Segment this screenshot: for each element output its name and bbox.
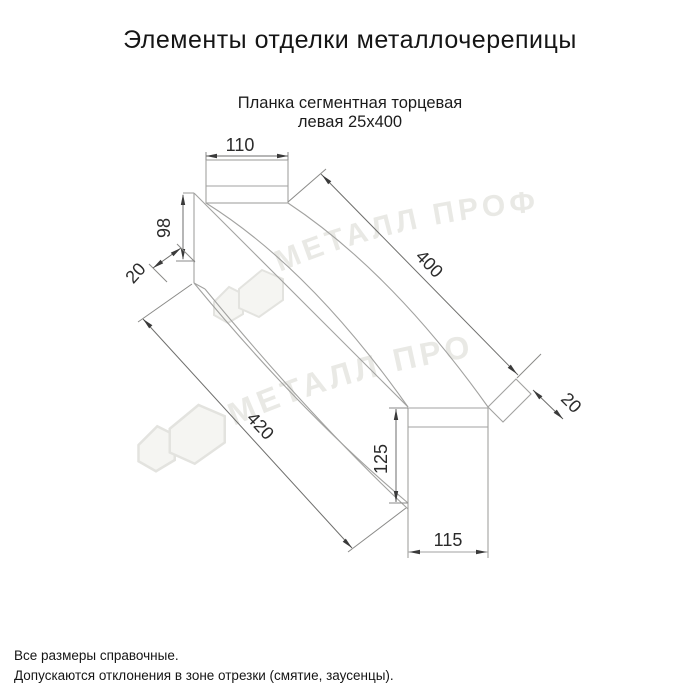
top-flange-face bbox=[206, 160, 288, 203]
watermark-logo-2 bbox=[139, 405, 225, 471]
left-end-kick-stub bbox=[194, 283, 205, 289]
dim-98-label: 98 bbox=[154, 218, 174, 238]
dimension-left-flange: 20 bbox=[121, 244, 195, 287]
footnote-line1: Все размеры справочные. bbox=[14, 646, 614, 666]
dimension-top-width: 110 bbox=[206, 135, 288, 160]
dim-20-left-label: 20 bbox=[121, 259, 149, 287]
dim-20-right-label: 20 bbox=[557, 389, 585, 417]
part-left-end bbox=[183, 160, 288, 289]
technical-drawing: МЕТАЛЛ ПРОФИЛЬ МЕТАЛЛ ПРОФИЛЬ bbox=[0, 0, 700, 700]
watermark-text-1: МЕТАЛЛ ПРОФИЛЬ bbox=[0, 0, 540, 278]
dim-115-label: 115 bbox=[434, 530, 463, 550]
dimension-right-width: 115 bbox=[409, 530, 487, 554]
footnote-line2: Допускаются отклонения в зоне отрезки (с… bbox=[14, 666, 614, 686]
dim-110-label: 110 bbox=[226, 135, 255, 155]
footnotes: Все размеры справочные. Допускаются откл… bbox=[14, 646, 614, 686]
right-end-flange-face bbox=[488, 379, 531, 422]
dimension-right-flange: 20 bbox=[533, 389, 585, 419]
dimension-length-bottom: 420 bbox=[138, 284, 406, 552]
part-right-end bbox=[408, 379, 531, 558]
dimension-right-height: 125 bbox=[371, 408, 408, 503]
dim-125-label: 125 bbox=[371, 444, 391, 474]
dim-400-label: 400 bbox=[412, 246, 447, 282]
watermark-logo-1 bbox=[214, 270, 283, 323]
